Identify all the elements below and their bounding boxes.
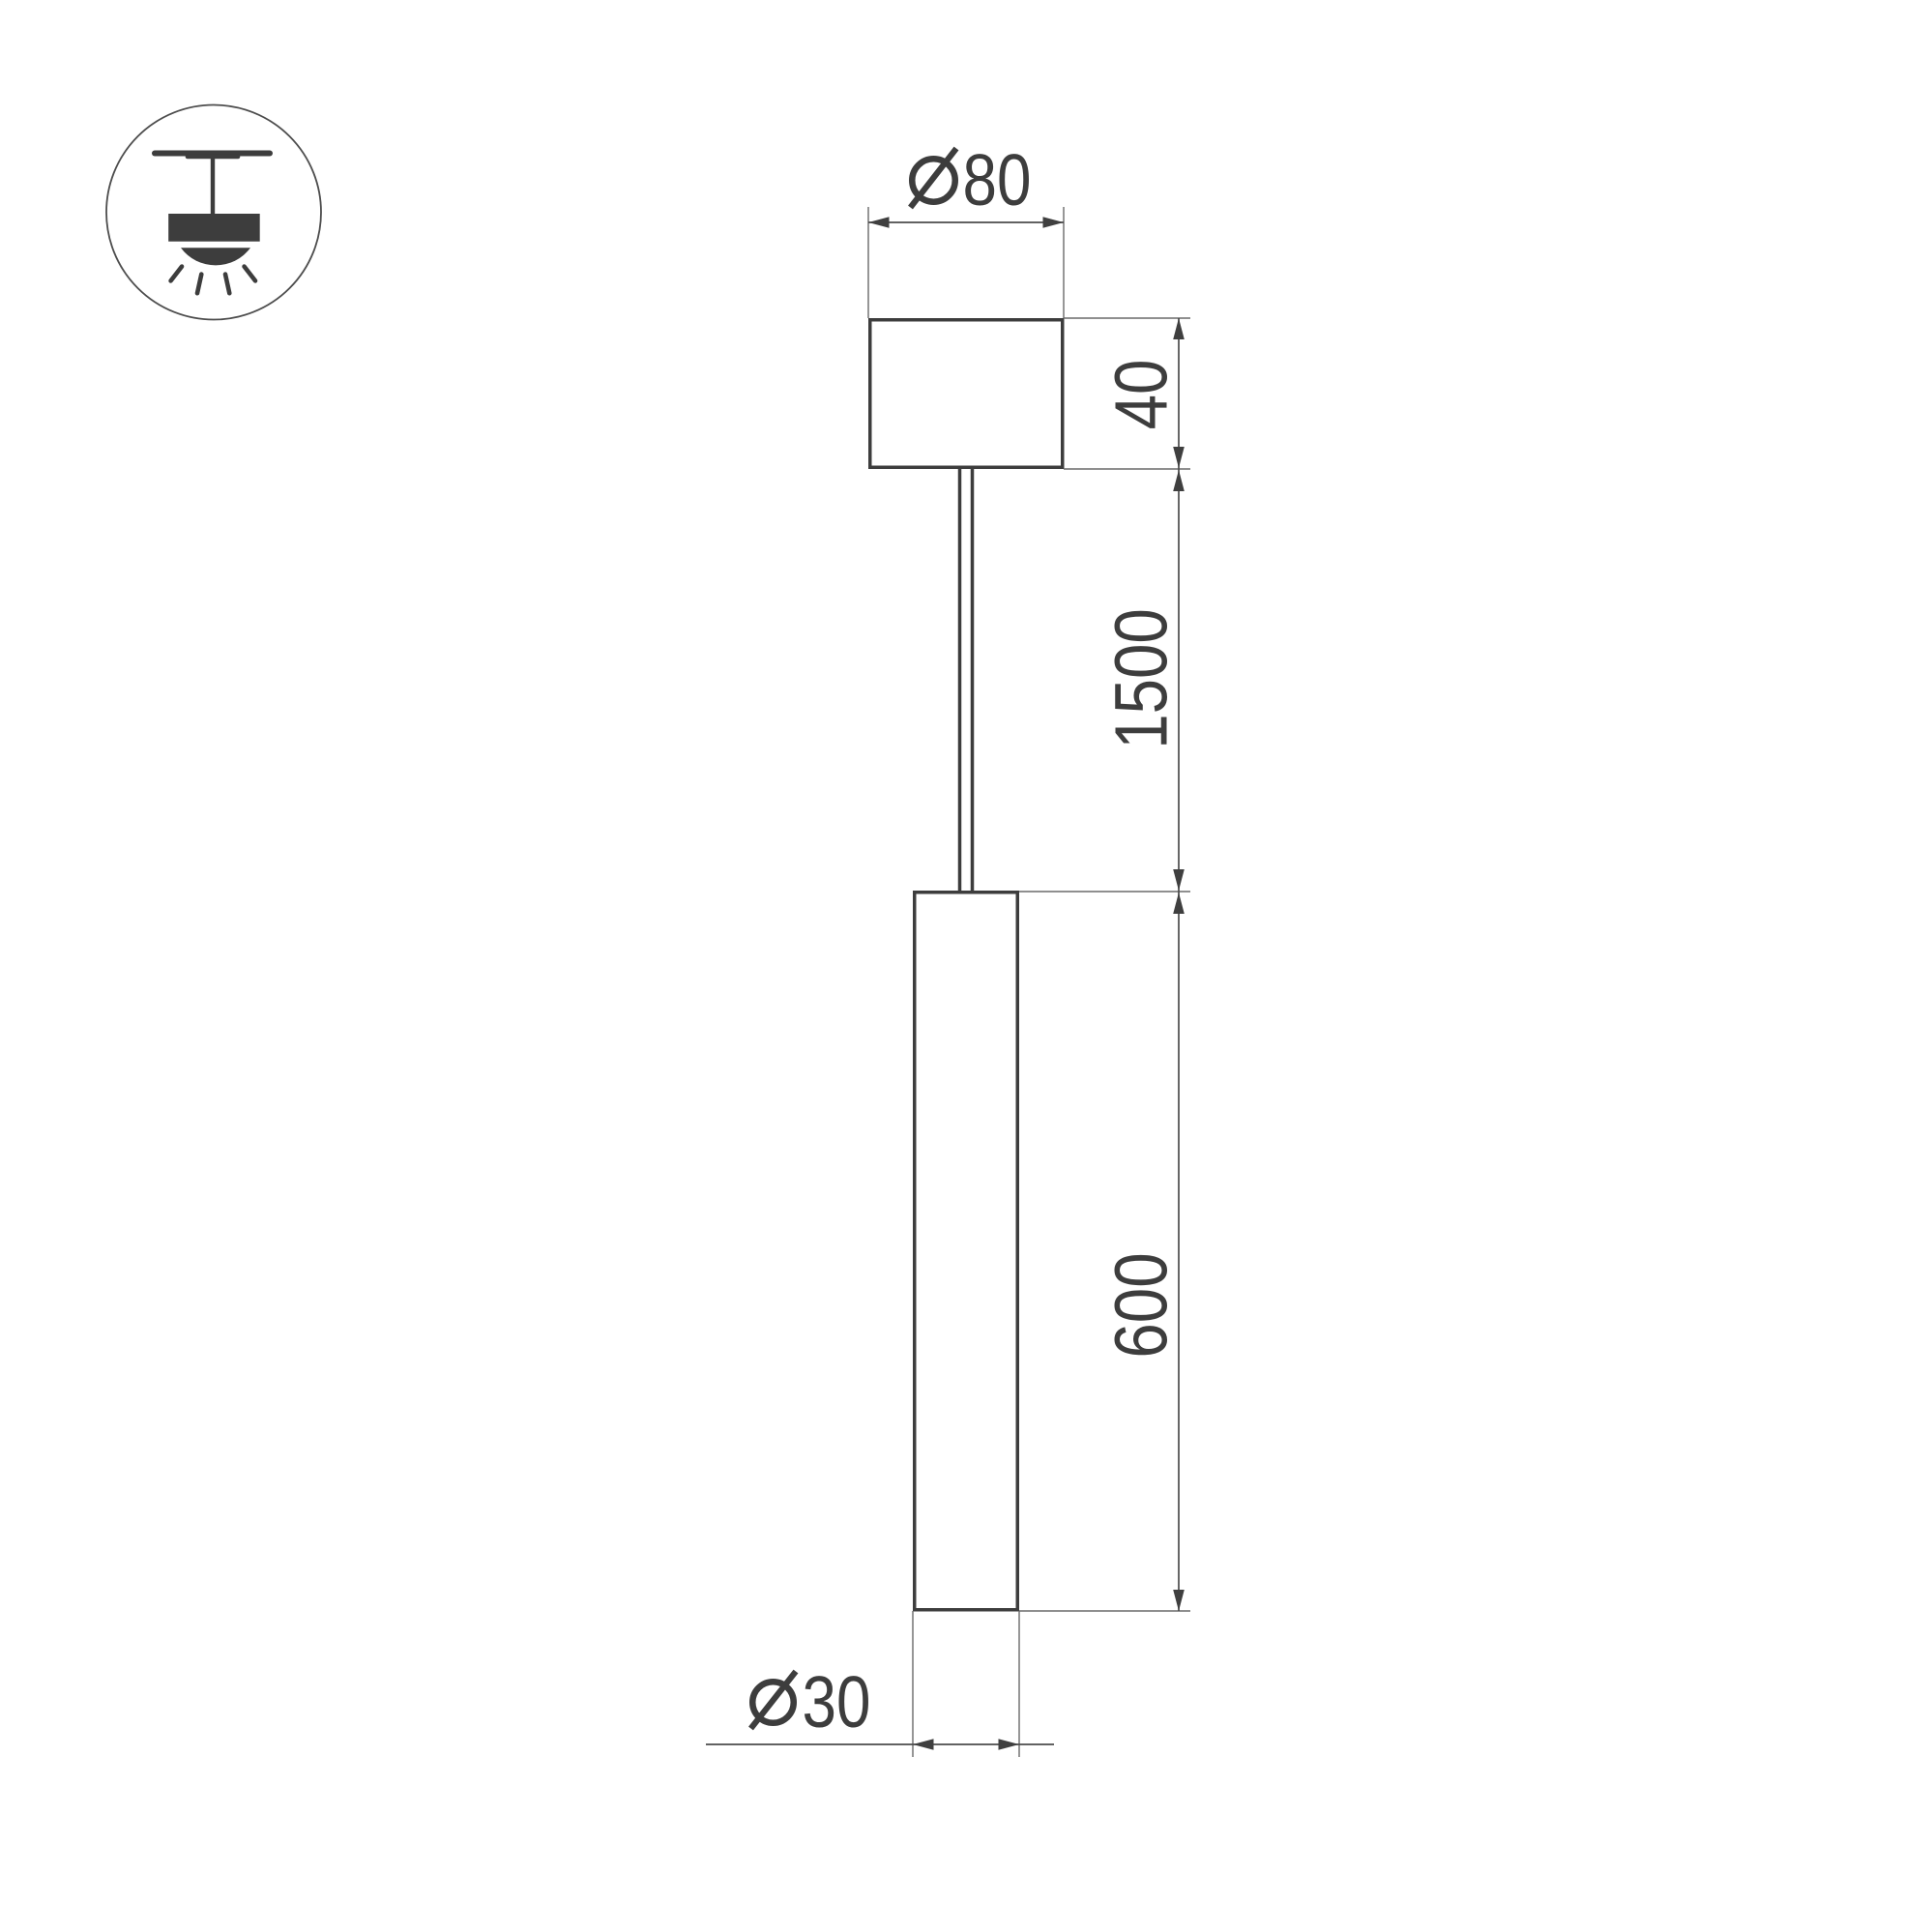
svg-text:1500: 1500 <box>1100 608 1184 749</box>
svg-text:30: 30 <box>803 1661 871 1742</box>
svg-text:40: 40 <box>1100 360 1184 430</box>
svg-text:80: 80 <box>963 139 1032 220</box>
svg-text:600: 600 <box>1100 1252 1184 1358</box>
